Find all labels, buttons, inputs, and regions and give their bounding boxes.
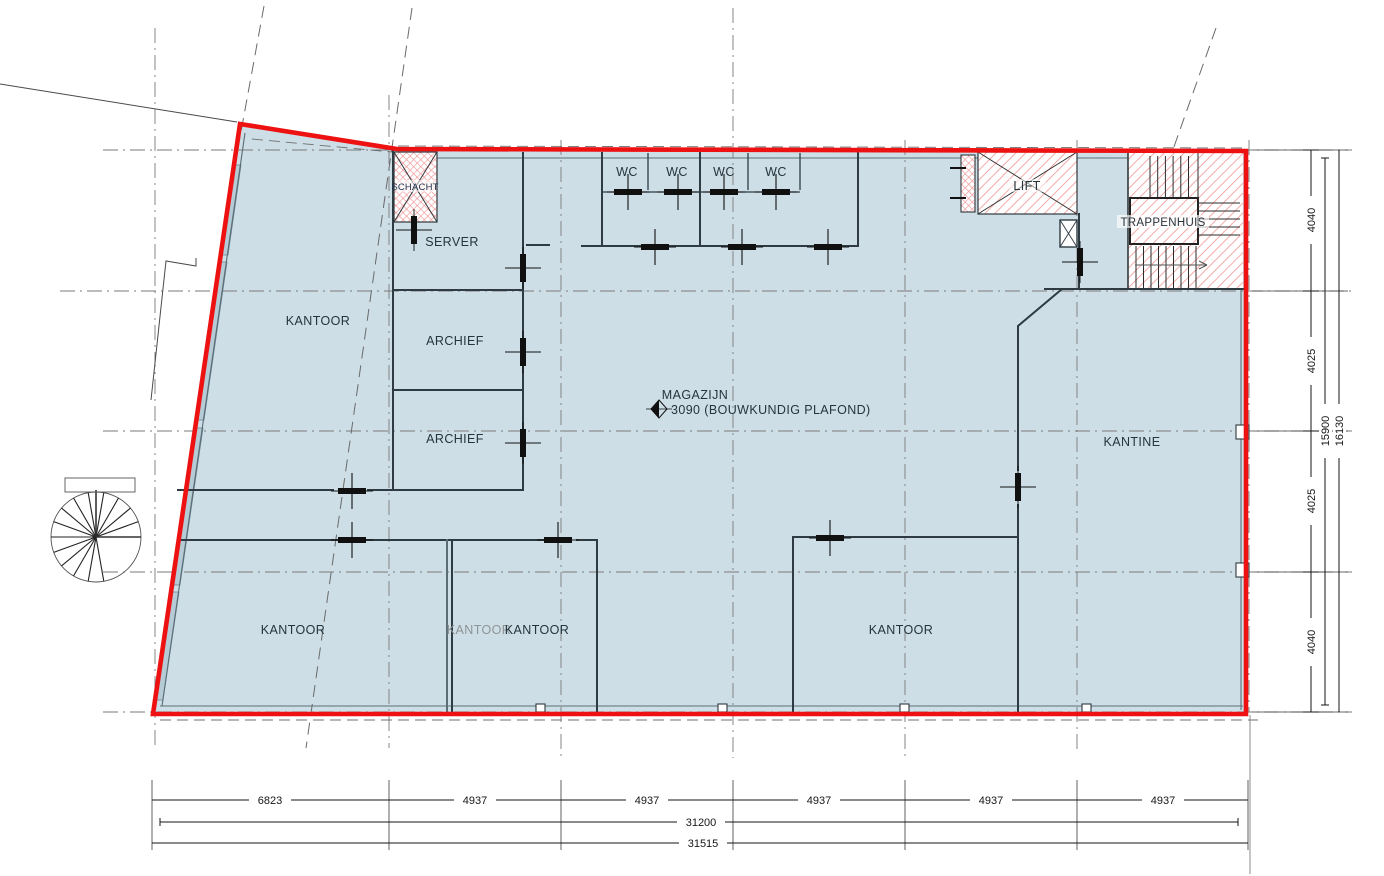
room-label-wc-4: WC [765,165,787,179]
dim-right-1: 4025 [1306,349,1318,373]
dim-right-total-inner: 15900 [1320,416,1332,447]
spiral-stair [51,478,141,582]
drawn-line [54,537,96,552]
drawn-line [62,508,96,537]
right-dimensions: 4040 4025 4025 4040 15900 16130 [1252,150,1348,712]
bottom-extension-lines [152,715,1250,874]
floor-plan-page: KANTOOR SERVER ARCHIEF ARCHIEF WC WC WC … [0,0,1384,876]
dim-bottom-2: 4937 [635,795,659,807]
room-label-wc-2: WC [666,165,688,179]
room-label-schacht: SCHACHT [391,182,438,193]
drawn-line [96,537,104,581]
drawn-line [54,522,96,537]
dim-bottom-5: 4937 [1151,795,1175,807]
floor-plan-canvas: KANTOOR SERVER ARCHIEF ARCHIEF WC WC WC … [0,0,1384,876]
room-label-kantoor-se: KANTOOR [869,623,933,637]
room-label-archief-2: ARCHIEF [426,432,484,446]
room-label-kantoor-sw: KANTOOR [261,623,325,637]
room-label-kantine: KANTINE [1104,435,1161,449]
dim-right-3: 4040 [1306,630,1318,654]
label-magazijn-ceiling: 3090 (BOUWKUNDIG PLAFOND) [671,403,871,417]
room-label-wc-1: WC [616,165,638,179]
dim-bottom-1: 4937 [463,795,487,807]
dim-right-total-outer: 16130 [1334,416,1346,447]
dim-bottom-3: 4937 [807,795,831,807]
drawn-line [96,522,138,537]
room-label-kantoor-nw: KANTOOR [286,314,350,328]
room-label-archief-1: ARCHIEF [426,334,484,348]
drawn-line [96,508,130,537]
dim-right-2: 4025 [1306,489,1318,513]
drawn-line [62,537,96,566]
room-label-kantoor-s-gray: KANTOOR [447,623,511,637]
room-label-kantoor-s: KANTOOR [505,623,569,637]
room-label-magazijn: MAGAZIJN [662,388,728,402]
room-label-server: SERVER [425,235,479,249]
dim-bottom-total-outer: 31515 [688,838,719,850]
room-label-trappenhuis: TRAPPENHUIS [1120,217,1205,229]
bottom-dimensions: 6823 4937 4937 4937 4937 4937 31200 3151… [152,715,1250,874]
room-label-lift: LIFT [1013,179,1040,193]
room-label-wc-3: WC [713,165,735,179]
dim-bottom-4: 4937 [979,795,1003,807]
dim-bottom-total-inner: 31200 [686,817,717,829]
dim-bottom-0: 6823 [258,795,282,807]
dim-right-0: 4040 [1306,208,1318,232]
